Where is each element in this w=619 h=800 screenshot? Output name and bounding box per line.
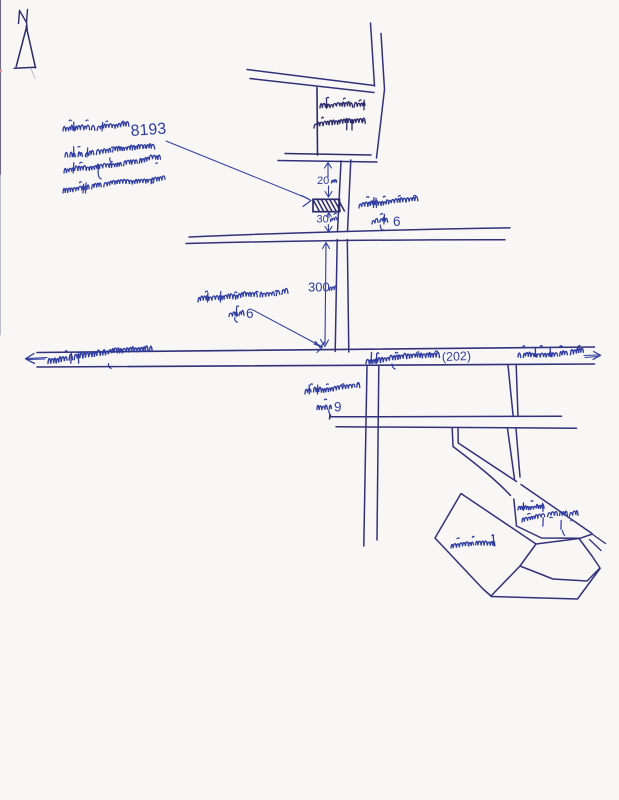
svg-text:30: 30	[317, 214, 329, 226]
svg-text:8193: 8193	[130, 121, 167, 140]
svg-text:9: 9	[334, 400, 342, 415]
svg-text:300: 300	[308, 280, 330, 295]
svg-text:(202): (202)	[442, 349, 472, 364]
svg-text:6: 6	[246, 306, 254, 321]
svg-text:20: 20	[317, 175, 329, 187]
svg-text:6: 6	[393, 214, 401, 229]
